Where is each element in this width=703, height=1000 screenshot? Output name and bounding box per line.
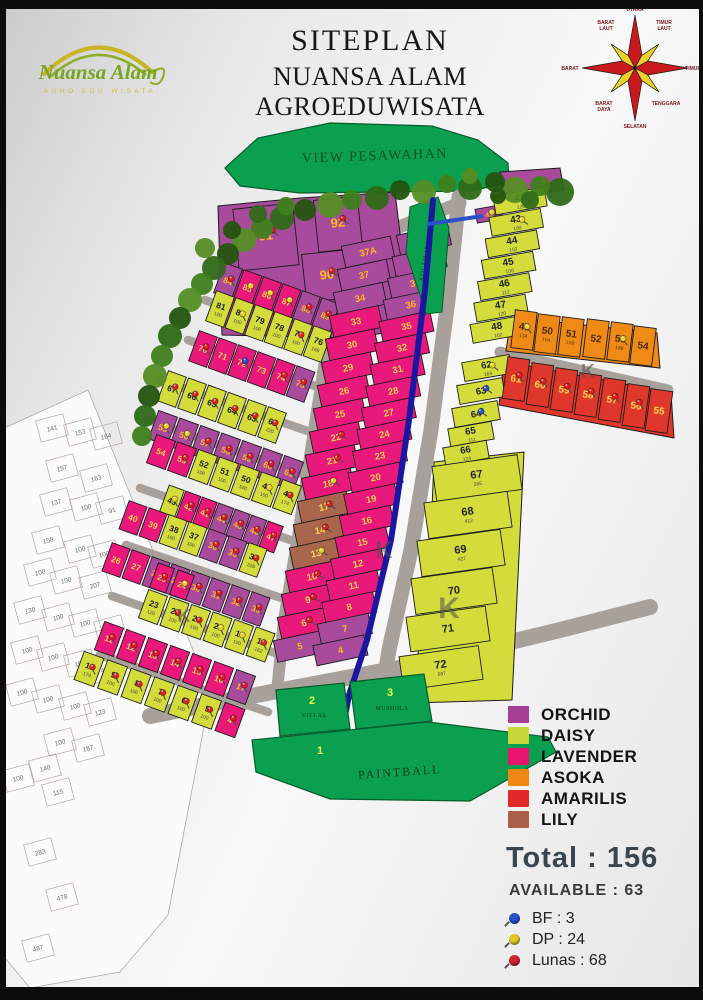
svg-text:33: 33 [350,316,363,329]
legend-label: ASOKA [541,768,605,788]
plot-49: 49134 [511,310,537,350]
title-line1: SITEPLAN [165,24,575,58]
compass-label-se: TENGGARA [652,101,681,107]
legend-swatch [508,748,529,765]
tree-icon [462,168,478,184]
svg-text:597: 597 [437,671,446,678]
tree-icon [521,191,539,209]
svg-text:28: 28 [387,385,400,398]
svg-text:427: 427 [457,556,466,563]
tree-icon [546,178,574,206]
facility-number: 2 [309,695,315,707]
compass-label-nw: BARATLAUT [597,20,614,32]
pin-stat-text: Lunas : 68 [532,952,607,970]
compass-rose: UTARATIMURLAUTTIMURTENGGARASELATANBARATD… [561,7,701,130]
tree-icon [223,221,241,239]
facility-label: MUSHOLA [375,706,408,712]
photo-frame-right [699,0,703,1000]
tree-icon [134,405,156,427]
svg-text:265: 265 [473,481,482,488]
legend-label: AMARILIS [541,789,627,809]
photo-frame-top [0,0,703,9]
tree-icon [294,199,316,221]
photo-frame-bottom [0,987,703,1000]
plot-53: 53188 [607,322,633,362]
pin-stat-dp: DP : 24 [509,929,607,950]
svg-text:134: 134 [519,333,528,340]
legend-row-daisy: DAISY [508,725,637,746]
svg-text:12: 12 [352,558,365,571]
legend-swatch [508,790,529,807]
tree-icon [438,175,456,193]
block-letter-K: K [375,537,393,564]
facility-villas [276,683,350,736]
svg-text:55: 55 [653,405,666,418]
legend-row-lily: LILY [508,809,637,830]
legend-label: LILY [541,810,578,830]
legend-swatch [508,727,529,744]
svg-text:20: 20 [369,472,382,485]
legend-row-amarilis: AMARILIS [508,788,637,809]
svg-text:72: 72 [434,658,448,672]
facility-number: 3 [387,687,393,699]
svg-text:32: 32 [396,342,409,355]
svg-text:36: 36 [405,299,418,312]
tree-icon [490,188,506,204]
total-count: Total : 156 [506,842,658,875]
pin-icon [509,955,520,966]
svg-text:16: 16 [361,515,374,528]
tree-icon [132,426,152,446]
page-title: SITEPLAN NUANSA ALAM AGROEDUWISATA [165,24,575,122]
svg-text:51: 51 [565,328,578,340]
block-letter-K: K [178,606,191,626]
pin-icon [509,934,520,945]
tree-icon [317,192,343,218]
svg-text:154: 154 [542,337,551,344]
tree-icon [138,385,160,407]
legend-label: ORCHID [541,705,611,725]
tree-icon [143,364,167,388]
svg-text:168: 168 [566,340,575,347]
legend-label: LAVENDER [541,747,637,767]
svg-text:26: 26 [338,385,351,398]
tree-icon [342,190,362,210]
tree-icon [390,180,410,200]
pin-stat-lunas: Lunas : 68 [509,950,607,971]
legend-swatch [508,811,529,828]
plot-52: 52 [583,319,609,359]
logo-sub-text: AGRO EDU WISATA [44,88,157,95]
compass-label-ne: TIMURLAUT [656,20,672,32]
photo-frame-left [0,0,6,1000]
svg-text:68: 68 [461,505,475,519]
available-count: AVAILABLE : 63 [509,882,644,900]
pin-icon [509,913,520,924]
plot-63: 63 [457,378,506,405]
legend-row-orchid: ORCHID [508,704,637,725]
logo-script-text: Nuansa Alam [38,60,158,84]
block-letter-K: K [581,361,596,383]
tree-icon [277,197,295,215]
svg-text:54: 54 [637,340,650,352]
tree-icon [151,345,173,367]
block-letter-J: J [213,262,223,282]
compass-label-sw: BARATDAYA [595,101,612,113]
svg-text:19: 19 [365,493,378,506]
svg-text:23: 23 [374,450,387,463]
svg-text:27: 27 [383,407,396,420]
title-line2: NUANSA ALAM AGROEDUWISATA [165,62,575,122]
compass-label-s: SELATAN [624,124,647,130]
tree-icon [158,324,182,348]
block-letter-K: K [438,592,460,625]
legend-row-lavender: LAVENDER [508,746,637,767]
svg-text:29: 29 [342,362,355,375]
legend-row-asoka: ASOKA [508,767,637,788]
legend-swatch [508,769,529,786]
svg-text:67: 67 [470,468,484,482]
plot-64: 64 [452,401,501,428]
tree-icon [195,238,215,258]
svg-text:164: 164 [100,432,113,442]
facility-label: VILLAS [302,713,326,719]
tree-icon [365,186,389,210]
legend-label: DAISY [541,726,595,746]
plot-54: 54 [630,326,656,366]
legend-swatch [508,706,529,723]
plot-51: 51168 [558,317,584,357]
facility-mushola [350,674,432,729]
siteplan-photo: SITEPLAN NUANSA ALAM AGROEDUWISATA Nuans… [0,0,703,1000]
svg-text:412: 412 [464,518,473,525]
facility-number: 1 [317,745,323,757]
svg-text:188: 188 [615,345,624,352]
svg-text:52: 52 [590,333,603,345]
svg-text:69: 69 [454,543,468,557]
svg-text:30: 30 [346,339,359,352]
plot-50: 50154 [534,314,560,354]
svg-text:50: 50 [541,325,554,337]
svg-text:37: 37 [358,269,371,282]
pin-stat-text: DP : 24 [532,931,585,949]
logo: Nuansa Alam AGRO EDU WISATA [38,47,165,95]
pin-stats: BF : 3DP : 24Lunas : 68 [509,908,607,971]
tree-icon [249,205,267,223]
pin-stat-text: BF : 3 [532,910,575,928]
pin-stat-bf: BF : 3 [509,908,607,929]
legend: ORCHIDDAISYLAVENDERASOKAAMARILISLILY [508,704,637,830]
